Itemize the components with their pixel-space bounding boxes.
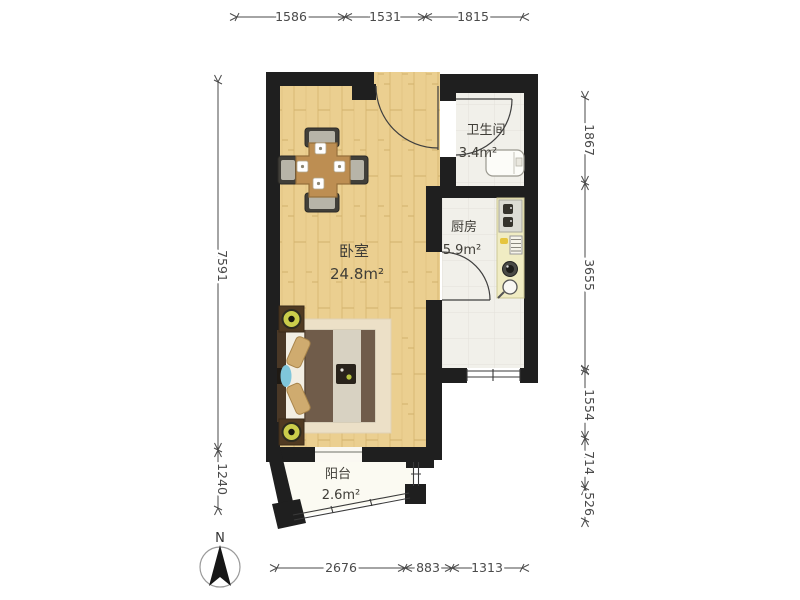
nightstand-bottom: [279, 419, 304, 445]
bed-group: [277, 306, 391, 445]
wall-kitchen-left-upper: [426, 186, 442, 252]
wall-balcony-corner: [406, 447, 434, 468]
towel: [281, 365, 292, 387]
faucet: [516, 158, 522, 166]
dim-right-1: 1867: [582, 124, 597, 156]
tray-dot: [346, 374, 351, 379]
kitchen-stove: [503, 262, 518, 277]
wall-balcony-window-post: [405, 484, 426, 504]
bedroom-area: 24.8m²: [330, 265, 384, 283]
bed-tray: [336, 364, 356, 384]
dim-right-4: 714: [582, 451, 597, 475]
wall-top-left: [266, 72, 374, 86]
chair-cushion: [350, 160, 364, 180]
wall-kitchen-bottom-left: [442, 368, 467, 383]
dim-bottom-2: 883: [416, 560, 440, 575]
chair-cushion: [281, 160, 295, 180]
kitchen-window: [467, 368, 520, 383]
entrance-threshold: [374, 72, 440, 88]
dim-right-3: 1554: [582, 389, 597, 421]
nightstand-top: [279, 306, 304, 332]
wall-balcony-top-right: [362, 447, 410, 462]
bathroom-label: 卫生间: [466, 123, 505, 138]
dim-right-5: 526: [582, 492, 597, 516]
dim-left-2: 1240: [215, 463, 230, 495]
chair-cushion: [309, 131, 335, 144]
chair-cushion: [309, 196, 335, 209]
dim-bottom-1: 2676: [325, 560, 357, 575]
compass: N: [200, 531, 240, 587]
floor-plan: 卧室 24.8m² 卫生间 3.4m² 厨房 5.9m² 阳台 2.6m² 15…: [0, 0, 800, 600]
kitchen-sink: [499, 200, 522, 232]
wall-kitchen-left-lower: [426, 300, 442, 460]
balcony-label: 阳台: [325, 467, 351, 482]
dim-bottom-3: 1313: [471, 560, 503, 575]
dim-top-2: 1531: [369, 9, 401, 24]
wall-right: [524, 74, 538, 383]
drying-rack: [510, 236, 522, 254]
dim-top-1: 1586: [275, 9, 307, 24]
bedroom-label: 卧室: [339, 242, 369, 260]
dim-top-3: 1815: [457, 9, 489, 24]
wall-bathroom-kitchen-divider: [440, 186, 538, 198]
bathroom-area: 3.4m²: [459, 146, 498, 161]
balcony-area: 2.6m²: [322, 488, 361, 503]
tray-dot: [340, 368, 343, 371]
dim-right-2: 3655: [582, 259, 597, 291]
balcony-door-threshold: [315, 447, 362, 462]
compass-north-label: N: [215, 531, 225, 546]
dim-left-1: 7591: [215, 250, 230, 282]
kitchen-label: 厨房: [451, 219, 477, 235]
wall-bathroom-left-upper: [440, 74, 456, 101]
kitchen-area: 5.9m²: [443, 243, 482, 258]
wall-kitchen-bottom-right: [520, 368, 538, 383]
kitchen-counter: [497, 198, 524, 298]
wall-entrance-step: [352, 84, 376, 100]
cutting-board: [500, 238, 508, 244]
wall-bathroom-left-lower: [440, 157, 456, 186]
balcony-opening: [315, 447, 362, 462]
